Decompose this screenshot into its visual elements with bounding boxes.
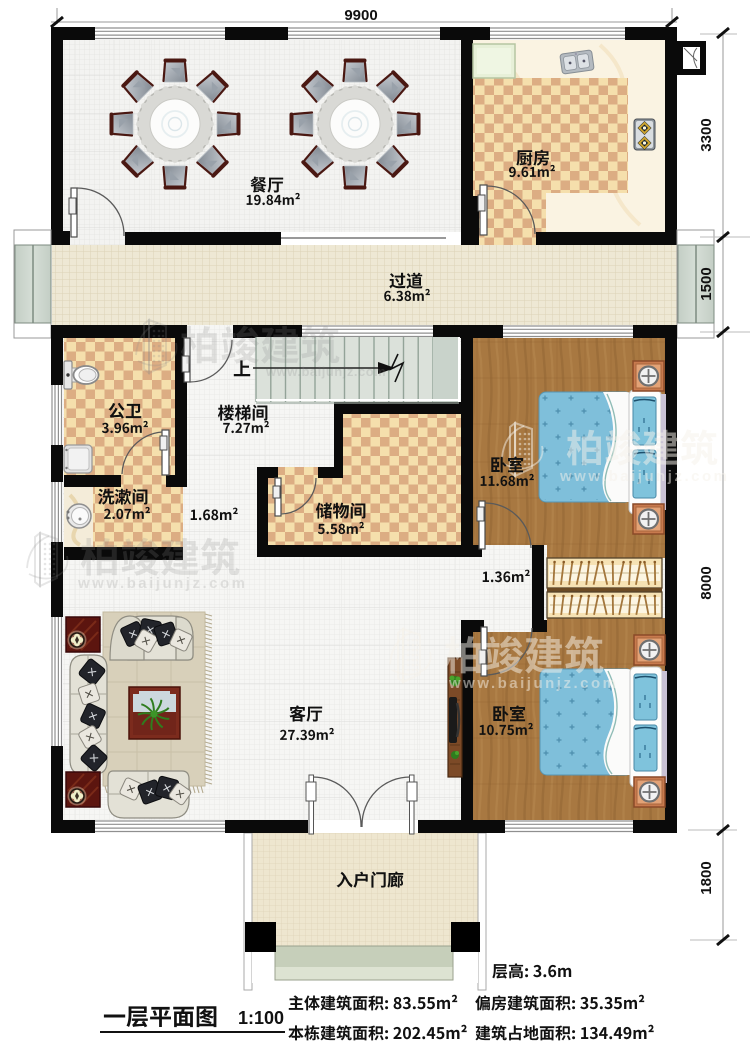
svg-text:www.baijunjz.com: www.baijunjz.com bbox=[265, 364, 386, 379]
svg-text:www.baijunjz.com: www.baijunjz.com bbox=[77, 575, 247, 592]
svg-text:1:100: 1:100 bbox=[238, 1008, 284, 1028]
svg-text:www.baijunjz.com: www.baijunjz.com bbox=[448, 675, 618, 692]
svg-text:9900: 9900 bbox=[344, 7, 377, 24]
svg-text:3300: 3300 bbox=[698, 118, 715, 151]
svg-text:1500: 1500 bbox=[698, 267, 715, 300]
svg-text:www.baijunjz.com: www.baijunjz.com bbox=[559, 468, 729, 485]
svg-text:1800: 1800 bbox=[698, 861, 715, 894]
svg-text:8000: 8000 bbox=[698, 566, 715, 599]
